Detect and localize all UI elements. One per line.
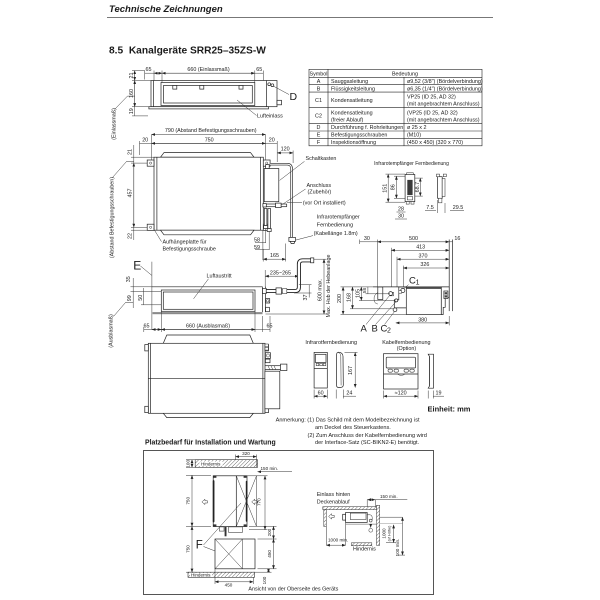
- svg-text:150 min.: 150 min.: [261, 466, 279, 471]
- svg-text:100: 100: [262, 576, 267, 584]
- svg-text:(mit angebrachtem Anschluss): (mit angebrachtem Anschluss): [407, 117, 480, 123]
- svg-text:Kondensatleitung: Kondensatleitung: [331, 110, 373, 116]
- svg-text:200: 200: [267, 528, 272, 536]
- svg-text:150 min.: 150 min.: [380, 494, 398, 499]
- svg-text:der Interface-Satz (SC-BIKN2-E: der Interface-Satz (SC-BIKN2-E) benötigt…: [315, 440, 420, 446]
- svg-text:600 max.: 600 max.: [318, 279, 324, 301]
- svg-text:450: 450: [267, 550, 272, 558]
- svg-text:790 (Abstand Befestigungsschra: 790 (Abstand Befestigungsschrauben): [165, 128, 257, 134]
- svg-text:37: 37: [303, 295, 309, 301]
- svg-text:7.5: 7.5: [426, 205, 434, 211]
- svg-text:Durchführung f. Rohrleitungen: Durchführung f. Rohrleitungen: [331, 125, 403, 131]
- svg-text:am Deckel des Steuerkastens.: am Deckel des Steuerkastens.: [315, 425, 391, 431]
- svg-text:235~265: 235~265: [270, 270, 291, 276]
- svg-text:750: 750: [185, 545, 190, 553]
- svg-text:Schaltkasten: Schaltkasten: [306, 156, 337, 162]
- svg-text:35: 35: [126, 276, 132, 282]
- svg-text:ø 25 x 2: ø 25 x 2: [407, 125, 426, 131]
- svg-text:65: 65: [256, 67, 262, 73]
- svg-text:D: D: [317, 125, 321, 131]
- svg-text:1000: 1000: [382, 528, 387, 539]
- svg-text:660 (Einlassmaß): 660 (Einlassmaß): [187, 67, 229, 73]
- svg-text:F: F: [196, 540, 203, 552]
- svg-text:E: E: [133, 258, 141, 272]
- svg-text:60: 60: [318, 390, 324, 396]
- svg-text:65: 65: [267, 324, 273, 330]
- svg-text:99: 99: [127, 295, 133, 301]
- svg-text:58: 58: [362, 288, 367, 294]
- svg-text:19: 19: [129, 108, 135, 114]
- svg-text:(Option): (Option): [397, 346, 417, 352]
- svg-text:86: 86: [391, 184, 397, 190]
- svg-text:(450 x 450) (320 x 770): (450 x 450) (320 x 770): [407, 140, 463, 146]
- svg-text:(of Höhe): (of Höhe): [387, 525, 391, 542]
- svg-text:167: 167: [348, 366, 354, 375]
- svg-text:ø6,35 (1/4") (Bördelverbindun: ø6,35 (1/4") (Bördelverbindung): [407, 86, 483, 92]
- svg-text:21: 21: [128, 149, 134, 155]
- svg-text:16: 16: [454, 236, 460, 242]
- svg-text:(mit angebrachtem Anschluss): (mit angebrachtem Anschluss): [407, 102, 480, 108]
- svg-text:Flüssigkeitsleitung: Flüssigkeitsleitung: [331, 86, 375, 92]
- svg-text:Anmerkung: (1) Das Schild mit: Anmerkung: (1) Das Schild mit dem Modelb…: [276, 418, 420, 424]
- svg-text:59: 59: [254, 245, 260, 251]
- svg-text:B: B: [317, 86, 321, 92]
- svg-text:165: 165: [270, 253, 279, 259]
- svg-text:Hindernis: Hindernis: [201, 462, 221, 467]
- svg-text:D: D: [290, 91, 298, 103]
- svg-text:750: 750: [205, 138, 214, 144]
- svg-text:500: 500: [409, 236, 418, 242]
- svg-text:28: 28: [398, 206, 404, 212]
- svg-text:450: 450: [225, 583, 233, 588]
- svg-text:105: 105: [355, 289, 361, 298]
- svg-text:120: 120: [281, 147, 290, 153]
- svg-text:168: 168: [347, 293, 353, 302]
- svg-text:1000 min.: 1000 min.: [328, 537, 348, 542]
- svg-text:C2: C2: [315, 114, 322, 120]
- svg-text:151: 151: [382, 184, 388, 193]
- svg-text:Aufhängeplatte für: Aufhängeplatte für: [163, 240, 207, 246]
- svg-text:Inspektionsöffnung: Inspektionsöffnung: [331, 140, 376, 146]
- svg-text:(Kabellänge 1.8m): (Kabellänge 1.8m): [314, 231, 358, 237]
- svg-text:750: 750: [185, 497, 190, 505]
- svg-text:Hindernis: Hindernis: [353, 547, 376, 553]
- svg-text:200: 200: [337, 294, 343, 303]
- svg-text:24: 24: [346, 390, 352, 396]
- svg-text:770: 770: [256, 498, 261, 506]
- svg-text:21: 21: [129, 73, 135, 79]
- svg-text:22: 22: [128, 233, 134, 239]
- svg-text:320: 320: [242, 451, 250, 456]
- svg-text:29.5: 29.5: [453, 205, 464, 211]
- svg-text:Kondensatleitung: Kondensatleitung: [331, 98, 373, 104]
- svg-text:413: 413: [416, 244, 425, 250]
- svg-text:50: 50: [138, 295, 144, 301]
- svg-text:ø9,52 (3/8") (Bördelverbindun: ø9,52 (3/8") (Bördelverbindung): [407, 79, 483, 85]
- svg-text:Sauggasleitung: Sauggasleitung: [331, 79, 368, 85]
- svg-text:Infrarotempfänger: Infrarotempfänger: [317, 215, 360, 221]
- svg-text:30: 30: [398, 213, 404, 219]
- svg-text:8.5 Kanalgeräte SRR25–35ZS-W: 8.5 Kanalgeräte SRR25–35ZS-W: [109, 46, 266, 57]
- svg-text:Symbol: Symbol: [310, 71, 328, 77]
- svg-text:Einlass hinten: Einlass hinten: [317, 492, 351, 498]
- svg-text:B: B: [372, 324, 378, 335]
- svg-text:(Abstand Befestigungsschrauben: (Abstand Befestigungsschrauben): [110, 177, 116, 258]
- svg-text:(Einlassmaß): (Einlassmaß): [112, 108, 118, 140]
- svg-text:Infrarotempfänger Fernbedienun: Infrarotempfänger Fernbedienung: [374, 161, 449, 167]
- svg-text:2: 2: [387, 328, 391, 335]
- svg-text:(Ausblasmaß): (Ausblasmaß): [109, 314, 115, 348]
- svg-text:Einheit: mm: Einheit: mm: [428, 404, 471, 413]
- svg-text:(vor Ort installiert): (vor Ort installiert): [303, 200, 346, 206]
- svg-text:30: 30: [364, 236, 370, 242]
- svg-text:20: 20: [142, 138, 148, 144]
- svg-text:Infrarotfernbedienung: Infrarotfernbedienung: [305, 340, 357, 346]
- svg-text:326: 326: [420, 262, 429, 268]
- svg-text:(M10): (M10): [407, 133, 421, 139]
- svg-text:≈120: ≈120: [395, 390, 407, 396]
- svg-text:C1: C1: [315, 98, 322, 104]
- svg-text:Anschluss: Anschluss: [307, 183, 332, 189]
- svg-text:(VP25 (ID 25, AD 32): (VP25 (ID 25, AD 32): [407, 110, 458, 116]
- svg-text:65: 65: [144, 324, 150, 330]
- svg-text:Luftaustritt: Luftaustritt: [207, 273, 233, 279]
- svg-text:1: 1: [416, 279, 420, 286]
- svg-text:68.7: 68.7: [415, 182, 421, 193]
- svg-text:(2) Zum Anschluss der Kabelfer: (2) Zum Anschluss der Kabelfernbedienung…: [308, 433, 427, 439]
- svg-text:Ansicht von der Oberseite des: Ansicht von der Oberseite des Geräts: [248, 587, 338, 593]
- svg-text:100: 100: [185, 460, 190, 468]
- svg-text:F: F: [317, 140, 321, 146]
- svg-text:100 min.: 100 min.: [395, 539, 400, 557]
- svg-text:Lufteinlass: Lufteinlass: [257, 113, 283, 119]
- svg-text:VP25 (ID 25, AD 32): VP25 (ID 25, AD 32): [407, 95, 456, 101]
- svg-text:A: A: [317, 79, 321, 85]
- svg-text:380: 380: [418, 317, 427, 323]
- svg-text:Platzbedarf für Installation u: Platzbedarf für Installation und Wartung: [145, 440, 276, 447]
- svg-text:370: 370: [419, 253, 428, 259]
- svg-text:Deckenablauf: Deckenablauf: [317, 499, 350, 505]
- svg-text:Technische Zeichnungen: Technische Zeichnungen: [109, 4, 223, 15]
- svg-text:E: E: [317, 133, 321, 139]
- svg-text:660 (Ausblasmaß): 660 (Ausblasmaß): [186, 324, 230, 330]
- svg-text:A: A: [361, 324, 368, 335]
- svg-text:Befestigungsschraube: Befestigungsschraube: [163, 247, 216, 253]
- svg-text:65: 65: [146, 67, 152, 73]
- svg-text:Max. Hub der Hebeanlage: Max. Hub der Hebeanlage: [326, 255, 332, 318]
- svg-text:Bedeutung: Bedeutung: [392, 71, 418, 77]
- svg-text:Befestigungsschrauben: Befestigungsschrauben: [331, 133, 387, 139]
- svg-text:(freier Ablauf): (freier Ablauf): [331, 117, 364, 123]
- svg-text:(Zubehör): (Zubehör): [308, 190, 332, 196]
- svg-text:Hindernis: Hindernis: [191, 573, 211, 578]
- svg-text:160: 160: [129, 89, 135, 98]
- svg-text:Fernbedienung: Fernbedienung: [317, 222, 353, 228]
- svg-text:19: 19: [436, 390, 442, 396]
- svg-text:20: 20: [269, 138, 275, 144]
- svg-text:457: 457: [128, 189, 134, 198]
